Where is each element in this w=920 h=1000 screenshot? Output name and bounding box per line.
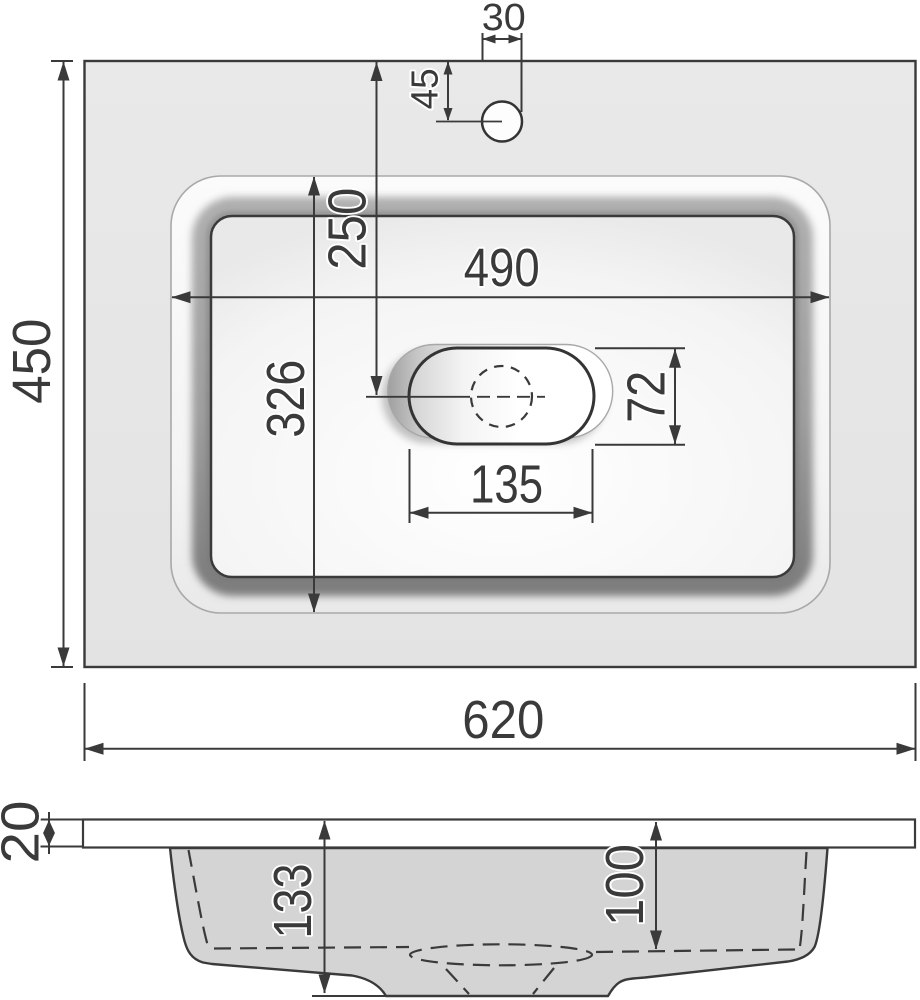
svg-text:100: 100: [595, 844, 655, 926]
svg-text:30: 30: [482, 0, 526, 39]
svg-text:326: 326: [256, 360, 316, 438]
svg-text:490: 490: [464, 238, 540, 298]
svg-text:450: 450: [2, 319, 62, 404]
svg-text:133: 133: [263, 864, 323, 939]
svg-text:72: 72: [617, 371, 677, 423]
svg-text:250: 250: [318, 188, 378, 270]
svg-text:20: 20: [0, 801, 51, 864]
svg-text:620: 620: [462, 690, 544, 750]
svg-text:135: 135: [470, 455, 543, 515]
svg-text:45: 45: [405, 68, 447, 109]
